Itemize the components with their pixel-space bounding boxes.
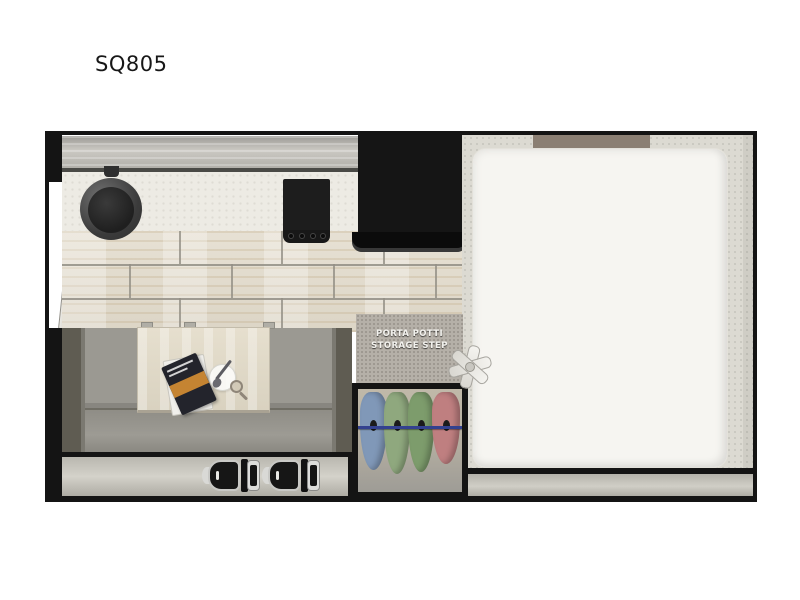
seat-cushion xyxy=(268,460,300,491)
towel-center xyxy=(465,362,475,372)
page-title: SQ805 xyxy=(95,52,167,76)
stove-knobs xyxy=(283,230,330,243)
sofa-armrest-right xyxy=(332,328,352,452)
porta-potti-label-line2: STORAGE STEP xyxy=(356,340,463,352)
stove-icon xyxy=(283,179,330,232)
bed xyxy=(472,148,728,468)
seat-headrest-core xyxy=(310,465,317,486)
seat-backrest xyxy=(241,459,248,492)
magazine-cover-band xyxy=(169,371,209,398)
seat-cushion xyxy=(208,460,240,491)
seat-stitch xyxy=(276,471,279,480)
tile-grout-line xyxy=(231,264,233,298)
hanging-clothes-blue xyxy=(360,392,387,470)
headboard xyxy=(533,135,650,149)
stove-knob xyxy=(288,233,294,239)
tile-grout-line xyxy=(62,298,462,300)
sofa-seatback-left xyxy=(85,328,142,408)
seat-stitch xyxy=(216,471,219,480)
bedroom-carpet xyxy=(462,135,753,496)
floorplan-image: PORTA POTTI STORAGE STEP xyxy=(45,131,757,502)
refrigerator xyxy=(358,135,462,232)
sink-basin xyxy=(88,187,134,233)
hanging-clothes-green xyxy=(384,392,410,474)
stove-knob xyxy=(320,233,326,239)
hanging-clothes-green xyxy=(408,392,434,472)
faucet-icon xyxy=(104,166,119,177)
rear-wall-upper xyxy=(49,135,62,182)
truck-seat xyxy=(265,459,319,492)
refrigerator-base xyxy=(352,232,467,252)
tile-grout-line xyxy=(281,298,283,332)
rear-wall-lower xyxy=(49,328,62,496)
spoon-bowl xyxy=(211,377,223,390)
porta-potti-label-line1: PORTA POTTI xyxy=(356,328,463,340)
seat-headrest-core xyxy=(250,465,257,486)
tile-grout-line xyxy=(62,264,462,266)
stove-knob xyxy=(299,233,305,239)
tile-grout-line xyxy=(179,231,181,264)
stove-knob xyxy=(310,233,316,239)
porta-potti-step: PORTA POTTI STORAGE STEP xyxy=(356,314,463,384)
wardrobe-interior xyxy=(358,389,462,492)
sink-icon xyxy=(80,178,142,240)
bed-foot-bumper xyxy=(462,474,753,496)
tile-grout-line xyxy=(333,264,335,298)
tile-grout-line xyxy=(435,264,437,298)
tile-grout-line xyxy=(129,264,131,298)
seat-backrest xyxy=(301,459,308,492)
sofa-seatback-right xyxy=(270,328,332,408)
wardrobe xyxy=(352,383,468,496)
sofa-armrest-left xyxy=(62,328,85,452)
carpet-shade xyxy=(743,135,753,475)
seat-headrest xyxy=(248,461,259,490)
sofa-bench xyxy=(85,408,332,452)
hanger-rod xyxy=(358,426,462,429)
seat-headrest xyxy=(308,461,319,490)
truck-seat xyxy=(205,459,259,492)
